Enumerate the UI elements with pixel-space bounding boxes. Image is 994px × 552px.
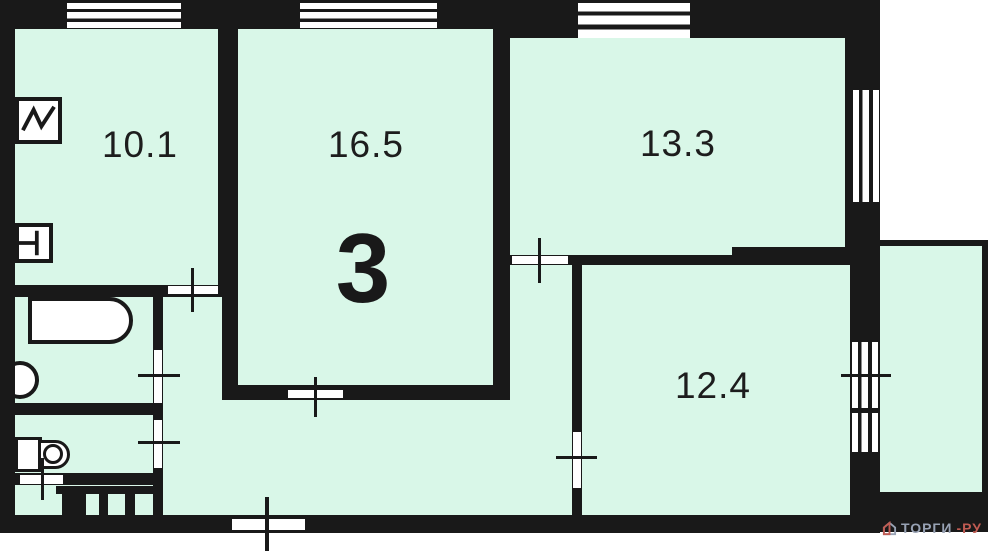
door-bedroom2 xyxy=(573,432,581,488)
door-marker-bathroom xyxy=(138,374,180,377)
kitchen-sink-icon xyxy=(15,97,62,144)
stove-glyph xyxy=(19,227,49,259)
room-living-floor xyxy=(238,29,493,385)
wall-left-strip xyxy=(0,285,15,533)
hallway-floor-right xyxy=(510,265,572,515)
closet-divider-1 xyxy=(62,494,86,515)
door-marker-wc xyxy=(138,441,180,444)
door-marker-balcony xyxy=(841,374,891,377)
window-bedroom1-right xyxy=(853,90,879,202)
floor-plan: 10.1 16.5 13.3 12.4 3 ТОРГИ-РУ xyxy=(0,0,994,552)
window-bedroom1-top xyxy=(578,3,690,38)
door-marker-kitchen xyxy=(191,268,194,312)
balcony-door-window-lower xyxy=(852,413,878,452)
window-living xyxy=(300,3,437,28)
label-rooms-count: 3 xyxy=(313,218,413,318)
watermark-logo: ТОРГИ-РУ xyxy=(882,518,988,538)
window-kitchen xyxy=(67,3,181,28)
watermark-text-gray: ТОРГИ xyxy=(901,520,952,536)
door-marker-entry xyxy=(265,497,269,551)
balcony-railing-right xyxy=(982,240,988,492)
kitchen-sink-zigzag xyxy=(19,101,58,140)
door-marker-living xyxy=(314,377,317,417)
label-bedroom2-area: 12.4 xyxy=(653,361,773,411)
stove-icon xyxy=(15,223,53,263)
closet-divider-2 xyxy=(99,494,108,515)
wall-bedroom1-bottom-thick xyxy=(732,247,850,265)
label-kitchen-area: 10.1 xyxy=(80,120,200,170)
door-wc xyxy=(154,420,162,468)
house-icon xyxy=(882,521,897,536)
label-living-area: 16.5 xyxy=(306,120,426,170)
closet-divider-3 xyxy=(125,494,135,515)
balcony-floor xyxy=(880,246,982,492)
bathtub-icon xyxy=(28,297,133,344)
closet-top-bar xyxy=(56,486,163,494)
watermark-text-red: -РУ xyxy=(956,520,982,536)
toilet-seat-icon xyxy=(43,444,63,464)
label-bedroom1-area: 13.3 xyxy=(618,119,738,169)
door-marker-wc-bottom xyxy=(41,458,44,500)
door-marker-bedroom1 xyxy=(538,238,541,283)
door-marker-bedroom2 xyxy=(556,456,597,459)
